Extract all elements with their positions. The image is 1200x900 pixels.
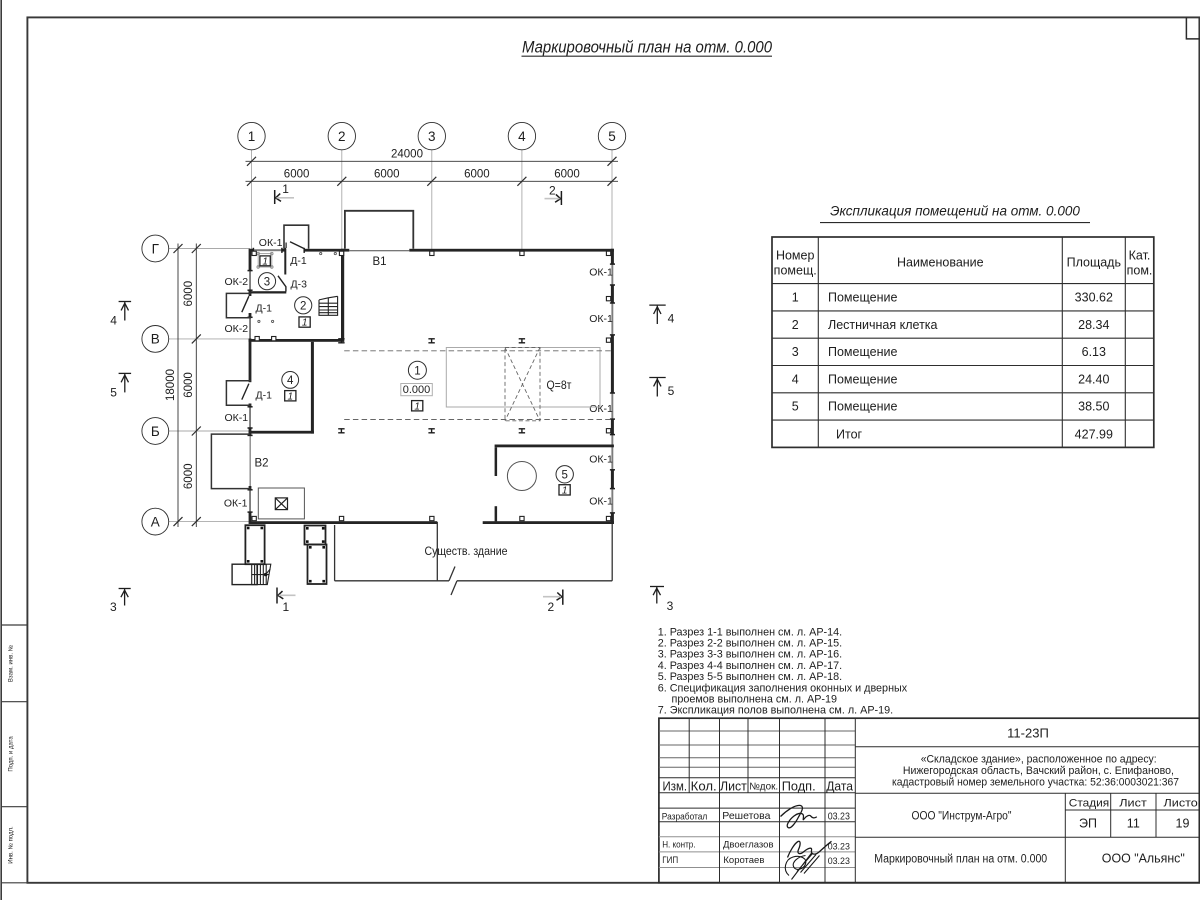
svg-text:5: 5	[561, 470, 567, 482]
svg-text:ОК-1: ОК-1	[589, 403, 613, 415]
svg-text:1: 1	[248, 129, 256, 144]
svg-text:№док.: №док.	[749, 782, 778, 793]
svg-text:Д-1: Д-1	[290, 255, 307, 267]
svg-text:Маркировочный план на отм. 0.0: Маркировочный план на отм. 0.000	[522, 38, 772, 57]
svg-text:Лист: Лист	[1119, 798, 1147, 810]
svg-text:Помещение: Помещение	[828, 345, 897, 359]
svg-text:3: 3	[792, 345, 799, 359]
svg-text:пом.: пом.	[1127, 264, 1153, 278]
svg-text:Существ. здание: Существ. здание	[425, 544, 508, 558]
svg-text:Г: Г	[152, 241, 160, 256]
svg-text:24.40: 24.40	[1078, 372, 1109, 386]
svg-text:Д-1: Д-1	[256, 389, 273, 401]
svg-text:1: 1	[414, 401, 420, 412]
svg-text:2: 2	[548, 600, 555, 614]
svg-text:Кол.: Кол.	[691, 779, 717, 794]
svg-text:1: 1	[792, 291, 799, 305]
svg-text:6000: 6000	[183, 372, 195, 398]
svg-text:6000: 6000	[554, 169, 580, 181]
svg-text:Наименование: Наименование	[897, 256, 984, 270]
svg-text:Экспликация помещений на отм.: Экспликация помещений на отм. 0.000	[830, 204, 1080, 219]
svg-text:1: 1	[282, 600, 289, 614]
svg-text:Нижегородская область, Вачский: Нижегородская область, Вачский район, с.…	[903, 765, 1174, 777]
svg-text:Площадь: Площадь	[1067, 256, 1121, 270]
svg-text:38.50: 38.50	[1078, 400, 1109, 414]
svg-text:Б: Б	[151, 424, 160, 439]
svg-text:Итог: Итог	[836, 427, 863, 441]
svg-text:Номер: Номер	[776, 249, 815, 263]
svg-text:11-23П: 11-23П	[1007, 726, 1049, 741]
svg-text:Лестничная клетка: Лестничная клетка	[828, 318, 938, 332]
svg-text:28.34: 28.34	[1078, 318, 1109, 332]
svg-text:кадастровый номер земельного у: кадастровый номер земельного участка: 52…	[892, 777, 1179, 789]
svg-text:1: 1	[282, 182, 289, 196]
svg-text:3: 3	[264, 276, 270, 288]
svg-text:4: 4	[287, 375, 294, 387]
svg-text:Q=8т: Q=8т	[547, 378, 572, 392]
svg-text:1: 1	[288, 391, 294, 402]
svg-text:Помещение: Помещение	[828, 400, 897, 414]
svg-text:3: 3	[110, 600, 117, 614]
svg-text:2: 2	[300, 301, 306, 313]
svg-text:ОК-1: ОК-1	[225, 412, 249, 424]
svg-text:3. Разрез 3-3 выполнен см. л.: 3. Разрез 3-3 выполнен см. л. АР-16.	[658, 649, 842, 661]
svg-text:5: 5	[608, 129, 616, 144]
svg-text:4. Разрез 4-4 выполнен см. л.: 4. Разрез 4-4 выполнен см. л. АР-17.	[658, 660, 842, 672]
svg-text:Коротаев: Коротаев	[723, 855, 764, 866]
svg-text:Маркировочный план на отм. 0.0: Маркировочный план на отм. 0.000	[874, 853, 1047, 865]
svg-text:ОК-1: ОК-1	[224, 498, 248, 510]
svg-text:ОК-2: ОК-2	[225, 276, 249, 288]
svg-text:ОК-1: ОК-1	[259, 237, 283, 249]
svg-text:Н. контр.: Н. контр.	[662, 840, 695, 851]
svg-text:Помещение: Помещение	[828, 291, 897, 305]
svg-text:4: 4	[792, 372, 799, 386]
svg-text:«Складское здание», расположен: «Складское здание», расположенное по адр…	[921, 754, 1157, 766]
svg-text:6000: 6000	[374, 169, 400, 181]
svg-text:1: 1	[562, 485, 568, 496]
svg-text:5: 5	[792, 400, 799, 414]
svg-text:ЭП: ЭП	[1079, 817, 1097, 831]
svg-text:Взам. инв. №: Взам. инв. №	[8, 645, 15, 682]
svg-text:Д-3: Д-3	[291, 279, 308, 291]
svg-text:ОК-1: ОК-1	[589, 313, 613, 325]
svg-text:Дата: Дата	[826, 779, 854, 794]
svg-text:Двоеглазов: Двоеглазов	[723, 840, 774, 851]
svg-text:03.23: 03.23	[828, 811, 850, 823]
svg-text:4: 4	[110, 314, 117, 328]
svg-text:1: 1	[302, 318, 308, 329]
svg-text:2. Разрез 2-2 выполнен см. л.: 2. Разрез 2-2 выполнен см. л. АР-15.	[658, 638, 842, 650]
svg-text:19: 19	[1176, 817, 1190, 831]
svg-text:А: А	[151, 514, 160, 529]
svg-text:Подп.: Подп.	[782, 779, 816, 794]
svg-text:Подп. и дата: Подп. и дата	[9, 736, 15, 772]
svg-text:3: 3	[667, 599, 674, 613]
svg-text:ОК-2: ОК-2	[225, 323, 249, 335]
svg-text:18000: 18000	[165, 369, 177, 401]
svg-text:Листов: Листов	[1164, 798, 1200, 810]
svg-text:Инв. № подл.: Инв. № подл.	[8, 826, 15, 864]
svg-text:1. Разрез 1-1 выполнен см. л.: 1. Разрез 1-1 выполнен см. л. АР-14.	[658, 626, 842, 638]
svg-text:ОК-1: ОК-1	[589, 454, 613, 466]
svg-text:Помещение: Помещение	[828, 372, 897, 386]
svg-text:В2: В2	[255, 458, 269, 470]
svg-text:6.13: 6.13	[1082, 345, 1106, 359]
svg-text:2: 2	[792, 318, 799, 332]
svg-text:6000: 6000	[464, 169, 490, 181]
svg-text:5: 5	[668, 384, 675, 398]
svg-text:Разработал: Разработал	[662, 812, 708, 823]
svg-text:4: 4	[518, 129, 526, 144]
svg-text:6000: 6000	[284, 169, 310, 181]
svg-text:В: В	[151, 332, 160, 347]
svg-text:330.62: 330.62	[1075, 291, 1113, 305]
svg-text:0.000: 0.000	[403, 384, 431, 396]
svg-text:Кат.: Кат.	[1129, 249, 1151, 263]
svg-text:Стадия: Стадия	[1069, 798, 1110, 810]
svg-text:Изм.: Изм.	[663, 779, 688, 794]
svg-text:6000: 6000	[183, 464, 195, 490]
svg-text:2: 2	[549, 184, 556, 198]
svg-text:03.23: 03.23	[828, 856, 850, 867]
svg-text:помещ.: помещ.	[774, 264, 817, 278]
svg-text:11: 11	[1127, 817, 1140, 831]
svg-text:427.99: 427.99	[1075, 427, 1113, 441]
svg-text:3: 3	[428, 129, 436, 144]
svg-text:24000: 24000	[391, 149, 423, 161]
svg-text:7. Экспликация полов выполнена: 7. Экспликация полов выполнена см. л. АР…	[658, 705, 893, 717]
svg-text:2: 2	[338, 129, 346, 144]
svg-text:Лист: Лист	[720, 779, 747, 794]
svg-text:1: 1	[414, 366, 420, 378]
svg-text:5: 5	[110, 386, 117, 400]
svg-text:ОК-1: ОК-1	[589, 267, 613, 279]
svg-text:В1: В1	[373, 256, 387, 268]
svg-text:ООО "Инструм-Агро": ООО "Инструм-Агро"	[912, 811, 1012, 823]
svg-text:6000: 6000	[183, 281, 195, 307]
svg-text:1: 1	[262, 256, 268, 267]
svg-text:ОК-1: ОК-1	[589, 496, 613, 508]
svg-text:ГИП: ГИП	[662, 855, 678, 866]
svg-text:ООО "Альянс": ООО "Альянс"	[1102, 850, 1185, 865]
svg-text:Д-1: Д-1	[256, 302, 273, 314]
svg-text:5. Разрез 5-5 выполнен см. л.: 5. Разрез 5-5 выполнен см. л. АР-18.	[658, 671, 842, 683]
svg-text:4: 4	[668, 312, 675, 326]
svg-text:проемов выполнена см. л. АР-19: проемов выполнена см. л. АР-19	[672, 693, 838, 705]
svg-text:Решетова: Решетова	[722, 810, 770, 822]
svg-text:03.23: 03.23	[828, 841, 850, 852]
